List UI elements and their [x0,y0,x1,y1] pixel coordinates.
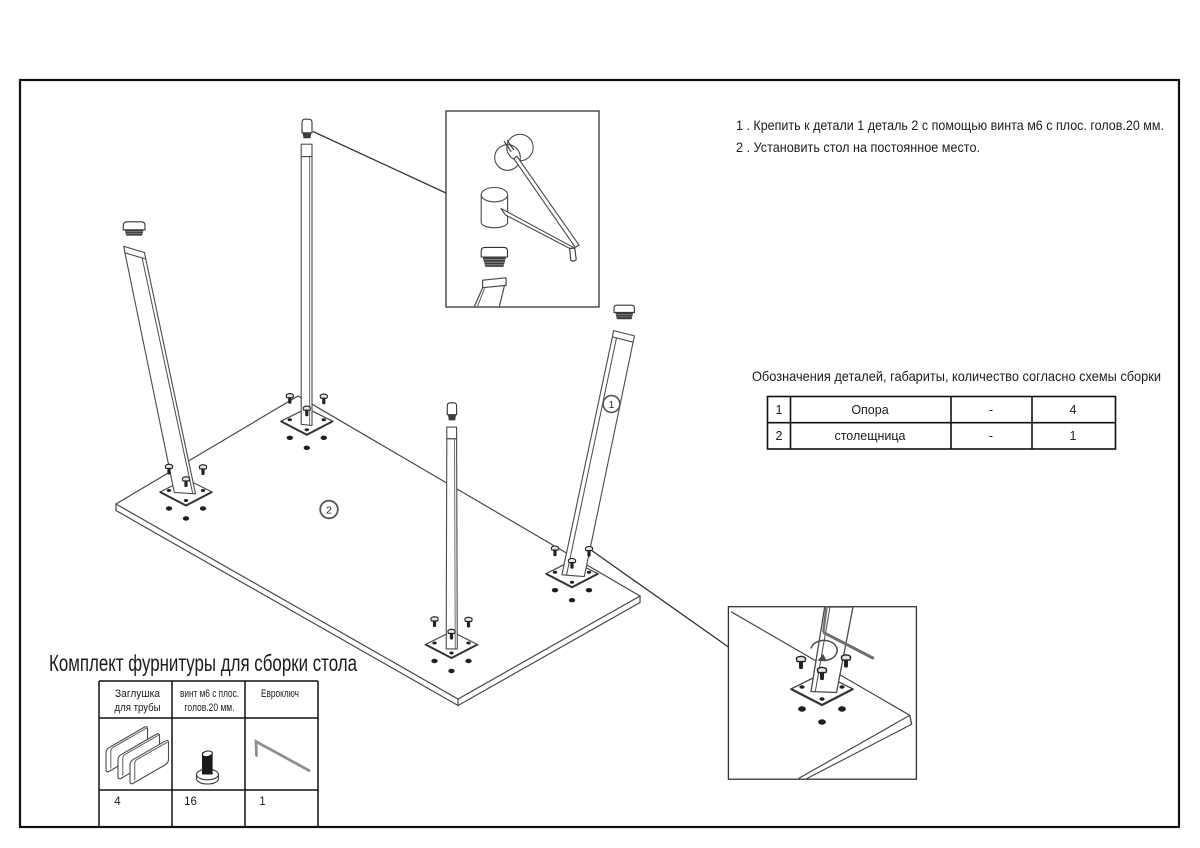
svg-text:2: 2 [776,429,783,443]
svg-text:Комплект фурнитуры для сборки: Комплект фурнитуры для сборки стола [49,650,357,676]
svg-text:Обозначения деталей, габариты,: Обозначения деталей, габариты, количеств… [752,369,1161,384]
svg-text:-: - [989,429,993,443]
svg-text:2 . Установить стол на постоян: 2 . Установить стол на постоянное место. [736,140,980,155]
svg-text:Евроключ: Евроключ [261,688,299,700]
svg-text:16: 16 [184,796,197,808]
svg-text:1: 1 [609,400,615,411]
svg-text:-: - [989,403,993,417]
svg-text:1 . Крепить к детали 1 деталь: 1 . Крепить к детали 1 деталь 2 с помощь… [736,118,1164,133]
svg-text:Опора: Опора [851,403,888,417]
svg-text:столещница: столещница [834,429,905,443]
svg-text:винт м6 с плос.: винт м6 с плос. [180,688,239,700]
svg-text:1: 1 [776,403,783,417]
svg-text:1: 1 [1070,429,1077,443]
svg-text:4: 4 [1070,403,1077,417]
svg-text:4: 4 [114,796,121,808]
svg-text:для трубы: для трубы [115,702,161,714]
svg-text:Заглушка: Заглушка [115,688,160,700]
svg-text:2: 2 [326,505,332,517]
svg-text:1: 1 [259,796,265,808]
svg-text:голов.20 мм.: голов.20 мм. [185,702,235,714]
